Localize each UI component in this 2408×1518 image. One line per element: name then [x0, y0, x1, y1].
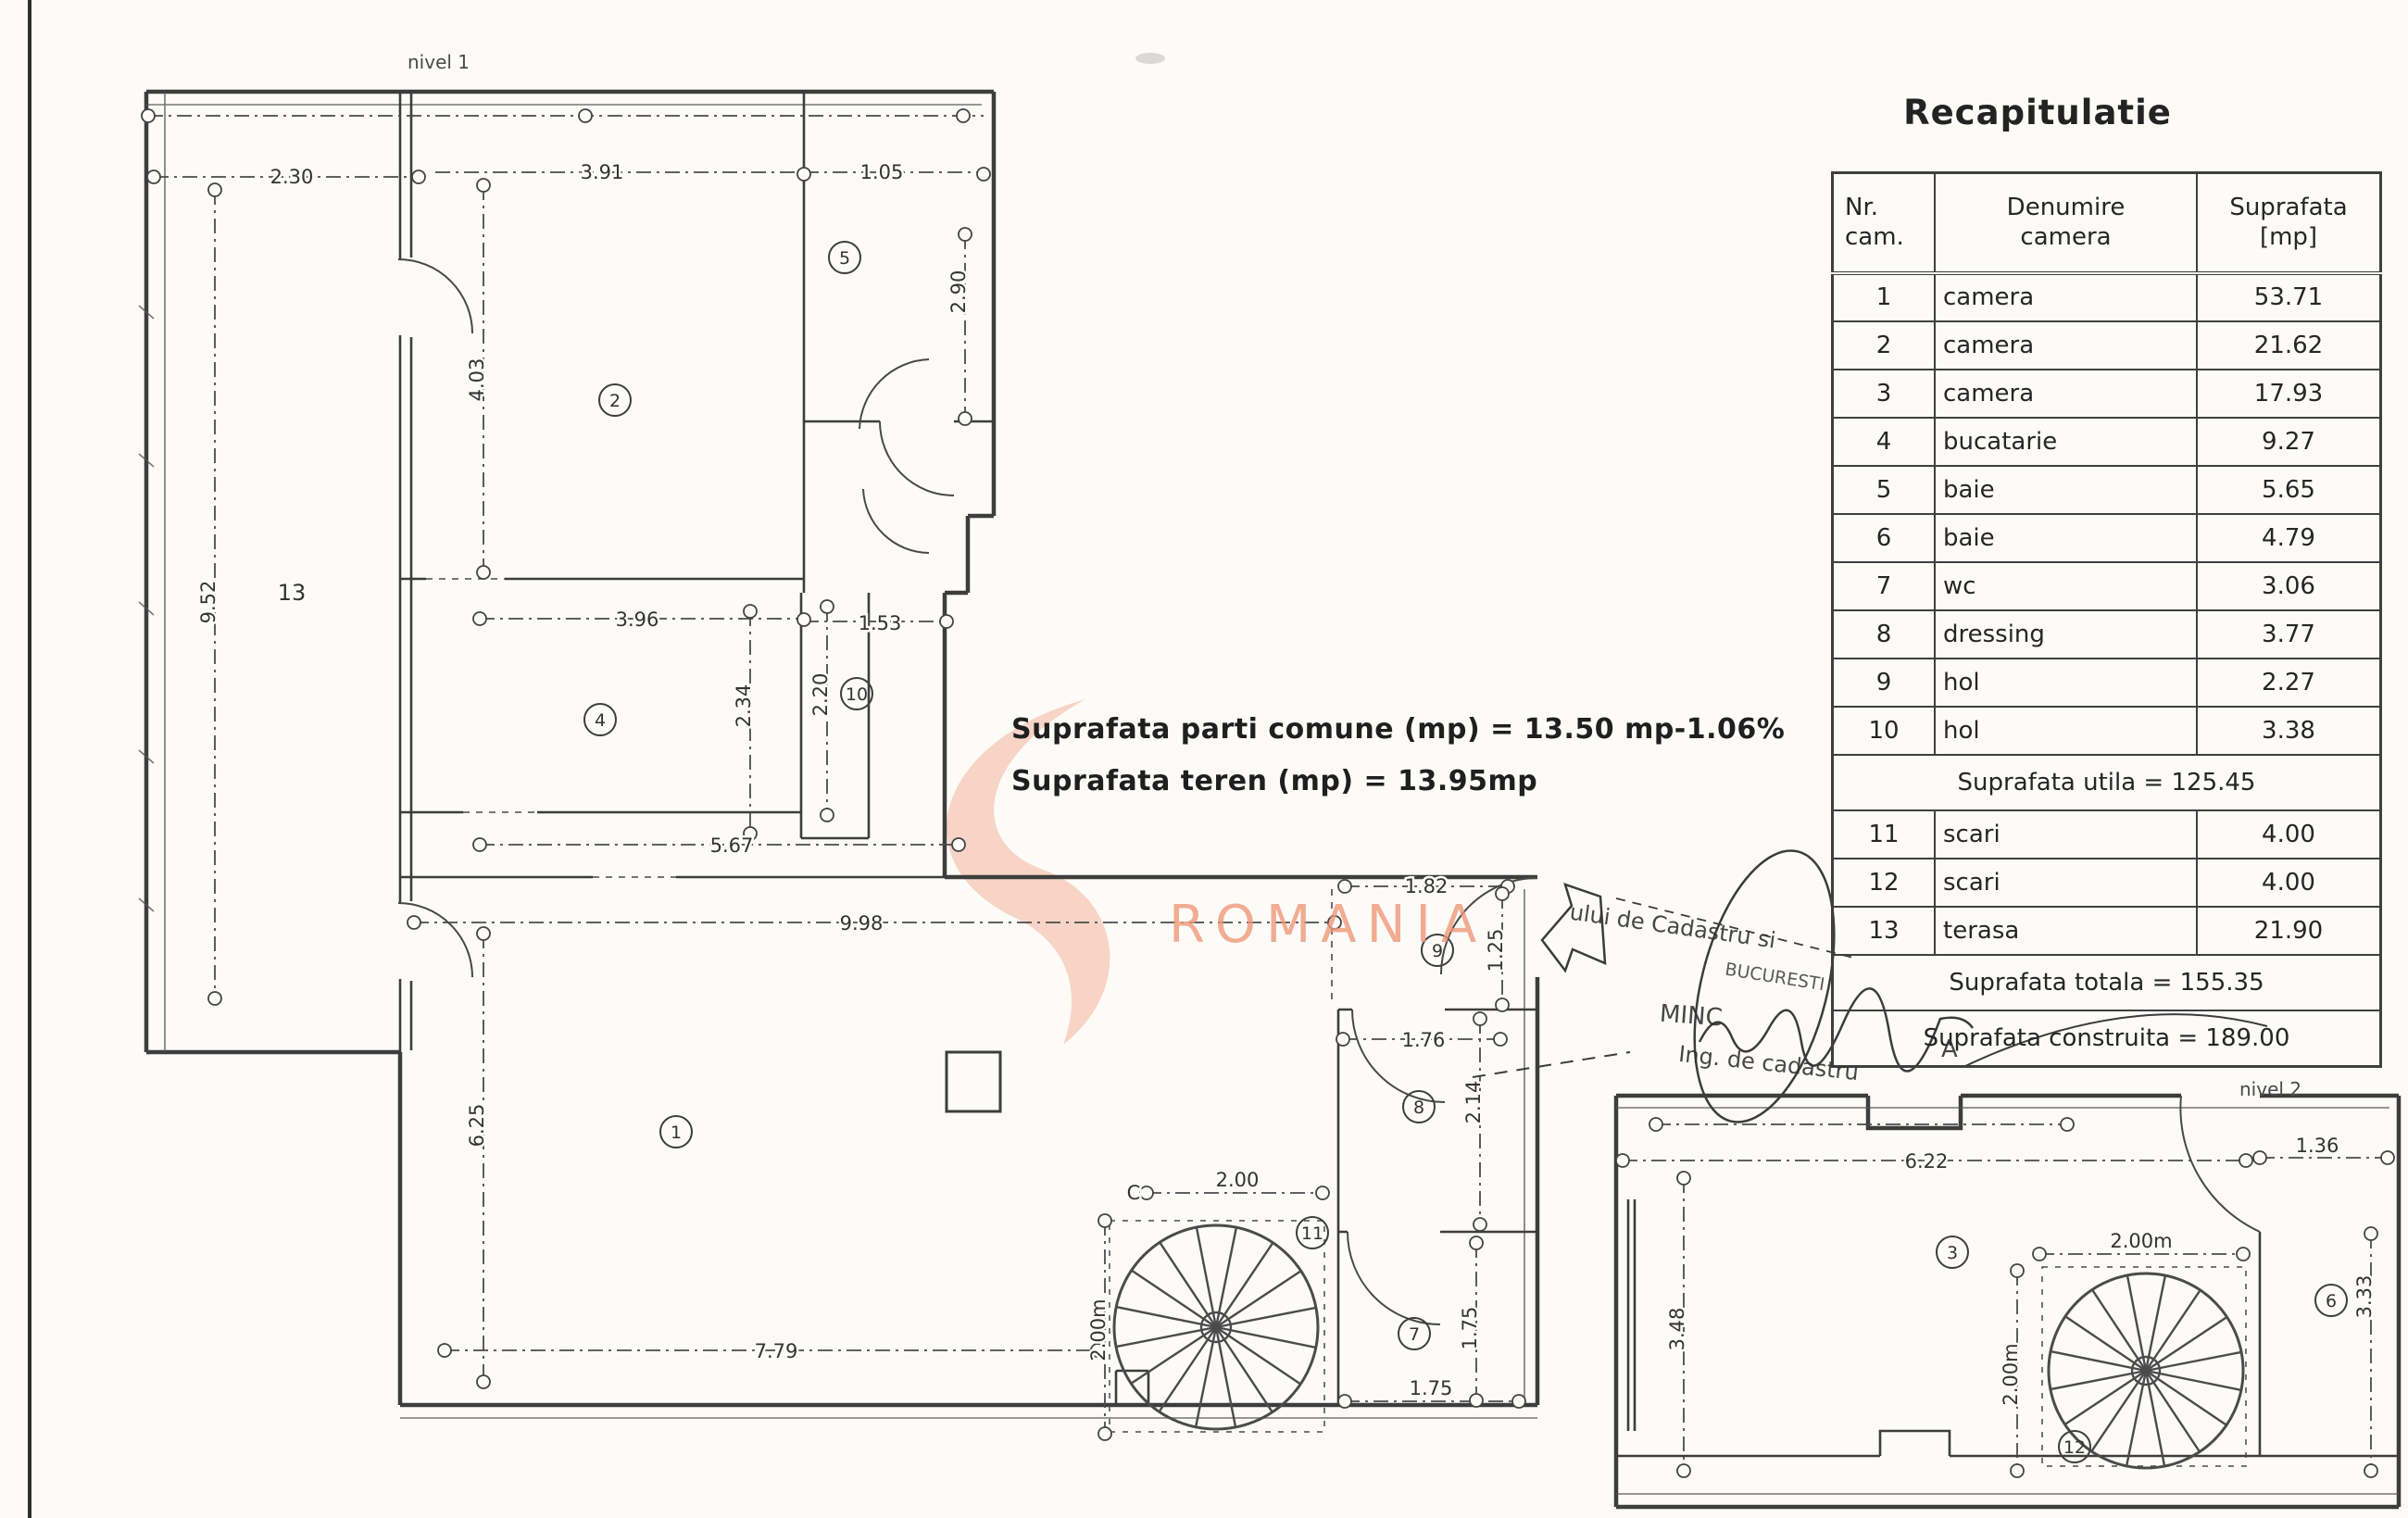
- dim-markers: [1616, 1118, 2394, 1477]
- room-label-terasa: 13: [278, 580, 307, 606]
- dim-label: 2.34: [733, 684, 755, 728]
- table-row: 9hol2.27: [1833, 659, 2381, 707]
- dim-label: 2.14: [1462, 1081, 1485, 1124]
- dim-label: 1.25: [1485, 929, 1507, 972]
- dim-label: 4.03: [466, 358, 488, 402]
- table-row: 5baie5.65: [1833, 466, 2381, 514]
- dim-label: 7.79: [755, 1340, 798, 1362]
- suprafata-parti-comune-line: Suprafata parti comune (mp) = 13.50 mp-1…: [1011, 713, 1785, 746]
- room-nr-cell: 1: [1833, 273, 1936, 321]
- nivel-1-label: nivel 1: [408, 51, 470, 73]
- dim-label: 2.20: [809, 673, 832, 717]
- svg-text:4: 4: [595, 710, 606, 731]
- dim-label: 2.00m: [1087, 1298, 1110, 1361]
- room-name-cell: camera: [1935, 273, 2197, 321]
- room-label: 8: [1403, 1091, 1435, 1123]
- header-denumire: Denumire: [1943, 193, 2189, 223]
- romania-watermark: ROMANIA: [1169, 895, 1486, 955]
- dim-label: 5.67: [710, 834, 754, 857]
- dim-label: 3.91: [581, 161, 624, 183]
- table-row: 11scari4.00: [1833, 810, 2381, 859]
- header-nr: Nr.: [1845, 193, 1926, 223]
- svg-text:5: 5: [839, 248, 850, 269]
- room-label: 6: [2315, 1285, 2347, 1316]
- dim-label: 2.00: [1216, 1169, 1260, 1191]
- table-row: 1camera53.71: [1833, 273, 2381, 321]
- table-header-row: Nr. cam. Denumire camera Suprafata [mp]: [1833, 173, 2381, 273]
- table-row: 8dressing3.77: [1833, 610, 2381, 659]
- dim-label: 3.48: [1666, 1308, 1688, 1351]
- table-row: 6baie4.79: [1833, 514, 2381, 562]
- dim-label: 2.30: [270, 166, 314, 188]
- dim-label: 1.76: [1402, 1029, 1446, 1051]
- watermark-swoosh: [947, 699, 1110, 1045]
- table-row: 3camera17.93: [1833, 370, 2381, 418]
- dim-label: 3.96: [616, 608, 659, 631]
- svg-text:2: 2: [609, 391, 621, 411]
- svg-text:3: 3: [1947, 1243, 1958, 1263]
- summary-row-construita: Suprafata construita = 189.00: [1833, 1010, 2381, 1067]
- dim-label: 1.36: [2296, 1135, 2339, 1157]
- dim-label: C: [1127, 1182, 1141, 1204]
- dim-label: 2.90: [947, 270, 970, 314]
- dim-label: 9.98: [840, 912, 884, 935]
- svg-text:1: 1: [671, 1123, 682, 1143]
- summary-row-utila: Suprafata utila = 125.45: [1833, 755, 2381, 810]
- dim-label: 2.00m: [2000, 1343, 2022, 1405]
- dim-label: 3.33: [2353, 1275, 2376, 1319]
- dim-label: 2.00m: [2110, 1230, 2172, 1252]
- svg-text:10: 10: [846, 684, 868, 705]
- recap-table: Nr. cam. Denumire camera Suprafata [mp] …: [1831, 171, 2382, 1068]
- room-label: 2: [599, 384, 631, 416]
- room-label: 1: [660, 1116, 692, 1148]
- room-label: 11: [1297, 1217, 1328, 1248]
- table-row: 10hol3.38: [1833, 707, 2381, 755]
- svg-text:8: 8: [1413, 1098, 1424, 1118]
- room-label: 4: [584, 704, 616, 735]
- dim-label: 9.52: [197, 581, 219, 624]
- room-area-cell: 53.71: [2197, 273, 2381, 321]
- suprafata-teren-line: Suprafata teren (mp) = 13.95mp: [1011, 765, 1537, 797]
- dim-label: 6.25: [466, 1104, 488, 1148]
- table-row: 7wc3.06: [1833, 562, 2381, 610]
- scan-smudge: [1135, 53, 1165, 64]
- room-label: 7: [1398, 1318, 1430, 1349]
- room-label: 5: [829, 242, 860, 273]
- svg-text:7: 7: [1409, 1324, 1420, 1345]
- table-row: 13terasa21.90: [1833, 907, 2381, 955]
- scanned-floorplan-page: nivel 1: [0, 0, 2408, 1518]
- summary-row-totala: Suprafata totala = 155.35: [1833, 955, 2381, 1010]
- table-row: 2camera21.62: [1833, 321, 2381, 370]
- dim-label: 1.75: [1459, 1307, 1481, 1350]
- header-suprafata: Suprafata: [2205, 193, 2372, 223]
- table-row: 4bucatarie9.27: [1833, 418, 2381, 466]
- stamp-text-initial: A: [1941, 1035, 1958, 1063]
- plan-nivel-1: nivel 1: [139, 51, 1537, 1440]
- stamp-text-name: MINC: [1659, 1000, 1724, 1033]
- dim-label: 1.05: [860, 161, 904, 183]
- dim-label: 1.75: [1410, 1377, 1453, 1399]
- dim-label: 6.22: [1905, 1150, 1949, 1173]
- svg-text:6: 6: [2326, 1291, 2337, 1311]
- room-label: 3: [1937, 1236, 1968, 1268]
- svg-text:11: 11: [1301, 1223, 1323, 1244]
- nivel-2-label: nivel 2: [2239, 1078, 2301, 1100]
- table-row: 12scari4.00: [1833, 859, 2381, 907]
- svg-text:12: 12: [2063, 1437, 2086, 1458]
- room-label: 10: [841, 678, 872, 709]
- dim-label: 1.53: [859, 612, 902, 634]
- recap-title: Recapitulatie: [1880, 93, 2195, 132]
- plan-nivel-2: 6.22 1.36 3.48 2.00m 2.00m 3.33 3 6 12: [1616, 1096, 2399, 1507]
- spiral-stair-nivel1: [1110, 1221, 1324, 1432]
